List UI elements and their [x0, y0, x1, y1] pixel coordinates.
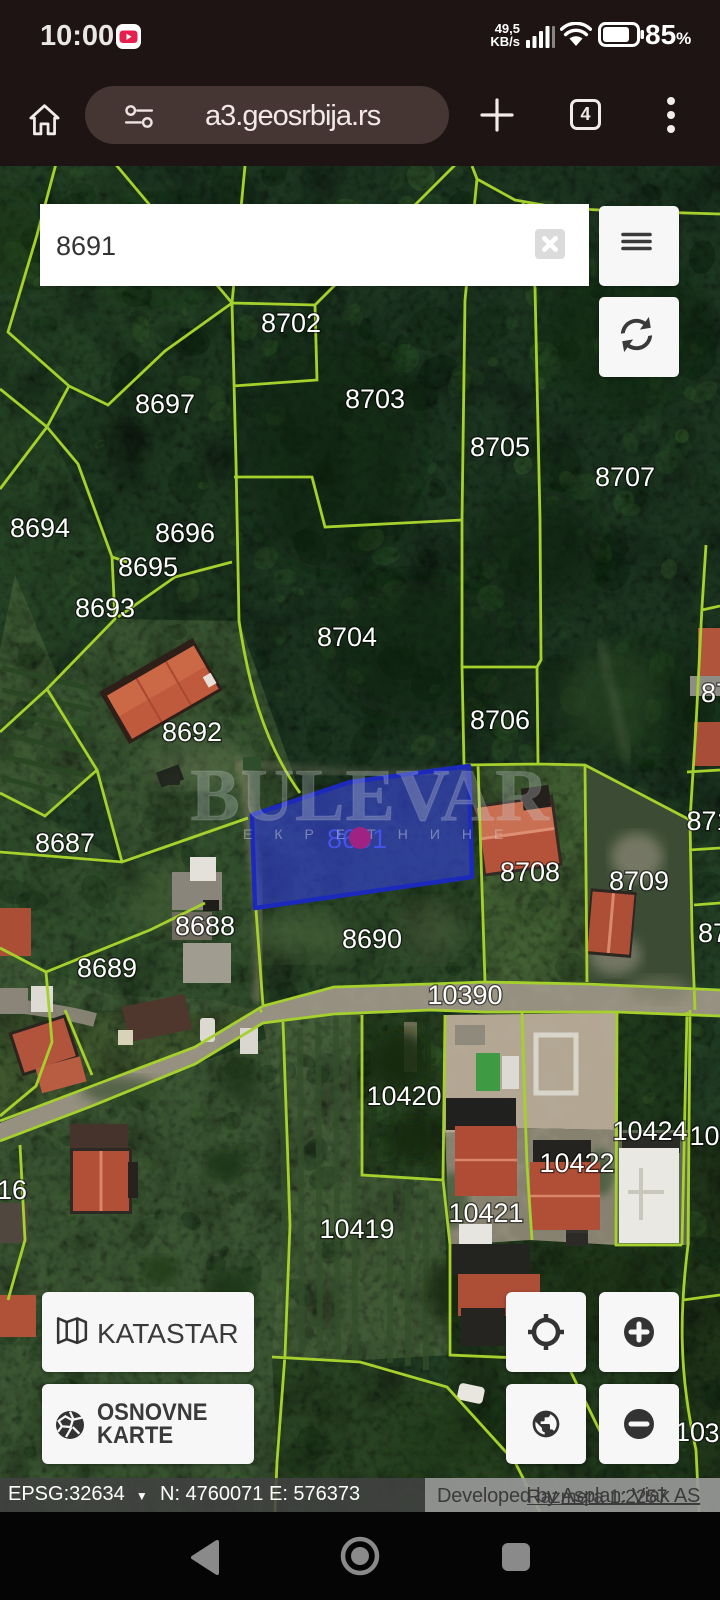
- svg-text:87: 87: [698, 918, 720, 948]
- svg-text:3: 3: [704, 1418, 719, 1448]
- svg-text:10: 10: [675, 1417, 705, 1447]
- svg-text:10390: 10390: [427, 980, 502, 1010]
- svg-text:8702: 8702: [261, 308, 321, 338]
- svg-text:8692: 8692: [162, 717, 222, 747]
- svg-text:10424: 10424: [612, 1116, 687, 1146]
- svg-text:ЕКРЕТНИНЕ: ЕКРЕТНИНЕ: [243, 826, 525, 842]
- svg-text:10421: 10421: [448, 1198, 523, 1228]
- svg-text:8709: 8709: [609, 866, 669, 896]
- svg-text:87: 87: [701, 678, 720, 708]
- svg-text:10420: 10420: [366, 1081, 441, 1111]
- svg-text:8696: 8696: [155, 518, 215, 548]
- svg-text:10419: 10419: [319, 1214, 394, 1244]
- svg-text:8693: 8693: [75, 593, 135, 623]
- svg-text:10422: 10422: [539, 1148, 614, 1178]
- svg-text:8695: 8695: [118, 552, 178, 582]
- svg-text:BULEVAR: BULEVAR: [190, 755, 550, 837]
- svg-text:8694: 8694: [10, 513, 70, 543]
- svg-text:8705: 8705: [470, 432, 530, 462]
- svg-text:8689: 8689: [77, 953, 137, 983]
- svg-text:8687: 8687: [35, 828, 95, 858]
- svg-text:871: 871: [686, 806, 720, 836]
- svg-text:8697: 8697: [135, 389, 195, 419]
- svg-text:8707: 8707: [595, 462, 655, 492]
- svg-text:8704: 8704: [317, 622, 377, 652]
- svg-text:8690: 8690: [342, 924, 402, 954]
- svg-text:8708: 8708: [500, 857, 560, 887]
- svg-text:16: 16: [0, 1175, 27, 1205]
- svg-text:8703: 8703: [345, 384, 405, 414]
- svg-text:104: 104: [689, 1121, 720, 1151]
- svg-text:8688: 8688: [175, 911, 235, 941]
- svg-text:8706: 8706: [470, 705, 530, 735]
